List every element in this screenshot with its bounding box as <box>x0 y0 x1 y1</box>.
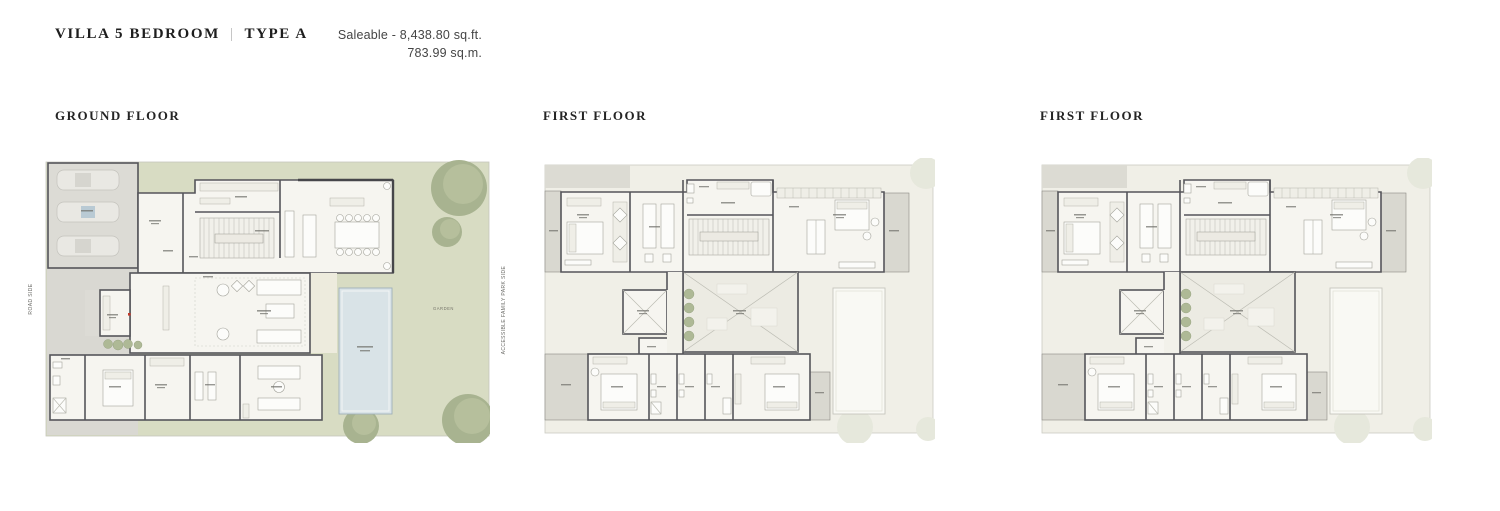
page-title: VILLA 5 BEDROOM|TYPE A <box>55 26 308 43</box>
floor-label-ground: GROUND FLOOR <box>55 108 180 124</box>
ground-floor-plan: GARDEN <box>45 158 490 443</box>
upper-room-band <box>561 180 884 272</box>
red-marker <box>128 313 131 316</box>
floor-label-first-1: FIRST FLOOR <box>543 108 647 124</box>
kitchen-dining-wing <box>138 180 393 273</box>
bed-icon <box>765 374 799 410</box>
living-room <box>130 273 337 353</box>
void-double-height <box>683 272 798 352</box>
balcony-left <box>545 191 561 272</box>
stairs <box>200 218 274 258</box>
car-icon <box>57 170 119 256</box>
saleable-sqm: 783.99 sq.m. <box>300 44 482 62</box>
first-floor-drawing <box>1034 158 1432 443</box>
stairs <box>689 219 769 255</box>
bed-icon <box>1262 374 1296 410</box>
balcony-bottom-right <box>810 372 830 420</box>
balcony-right <box>1381 193 1406 272</box>
void-double-height <box>1180 272 1295 352</box>
bed-icon <box>567 222 603 254</box>
balcony-bottom-right <box>1307 372 1327 420</box>
balcony-bottom-left <box>545 354 588 420</box>
first-floor-plan-1 <box>537 158 935 443</box>
garden-label: GARDEN <box>433 306 454 311</box>
bed-icon <box>1098 374 1134 410</box>
balcony-right <box>884 193 909 272</box>
saleable-area: Saleable - 8,438.80 sq.ft. 783.99 sq.m. <box>300 26 482 62</box>
title-divider: | <box>230 26 235 42</box>
floor-label-first-2: FIRST FLOOR <box>1040 108 1144 124</box>
bed-icon <box>601 374 637 410</box>
pool-outline <box>833 288 885 414</box>
roof-terrace <box>1042 165 1127 188</box>
first-floor-plan-2 <box>1034 158 1432 443</box>
pool-outline <box>1330 288 1382 414</box>
stairs <box>1186 219 1266 255</box>
upper-room-band <box>1058 180 1381 272</box>
brochure-page: VILLA 5 BEDROOM|TYPE A Saleable - 8,438.… <box>0 0 1500 511</box>
roof-terrace <box>545 165 630 188</box>
bed-icon <box>103 370 133 406</box>
road-side-label: ROAD SIDE <box>28 254 34 344</box>
ground-floor-drawing: GARDEN <box>45 158 490 443</box>
bed-icon <box>1064 222 1100 254</box>
villa-type: TYPE A <box>244 26 307 42</box>
balcony-bottom-left <box>1042 354 1085 420</box>
garage <box>48 163 138 268</box>
park-side-label: ACCESSIBLE FAMILY PARK SIDE <box>501 255 507 365</box>
villa-title: VILLA 5 BEDROOM <box>55 26 220 42</box>
balcony-left <box>1042 191 1058 272</box>
saleable-sqft: Saleable - 8,438.80 sq.ft. <box>300 26 482 44</box>
swimming-pool <box>339 288 392 414</box>
first-floor-drawing <box>537 158 935 443</box>
